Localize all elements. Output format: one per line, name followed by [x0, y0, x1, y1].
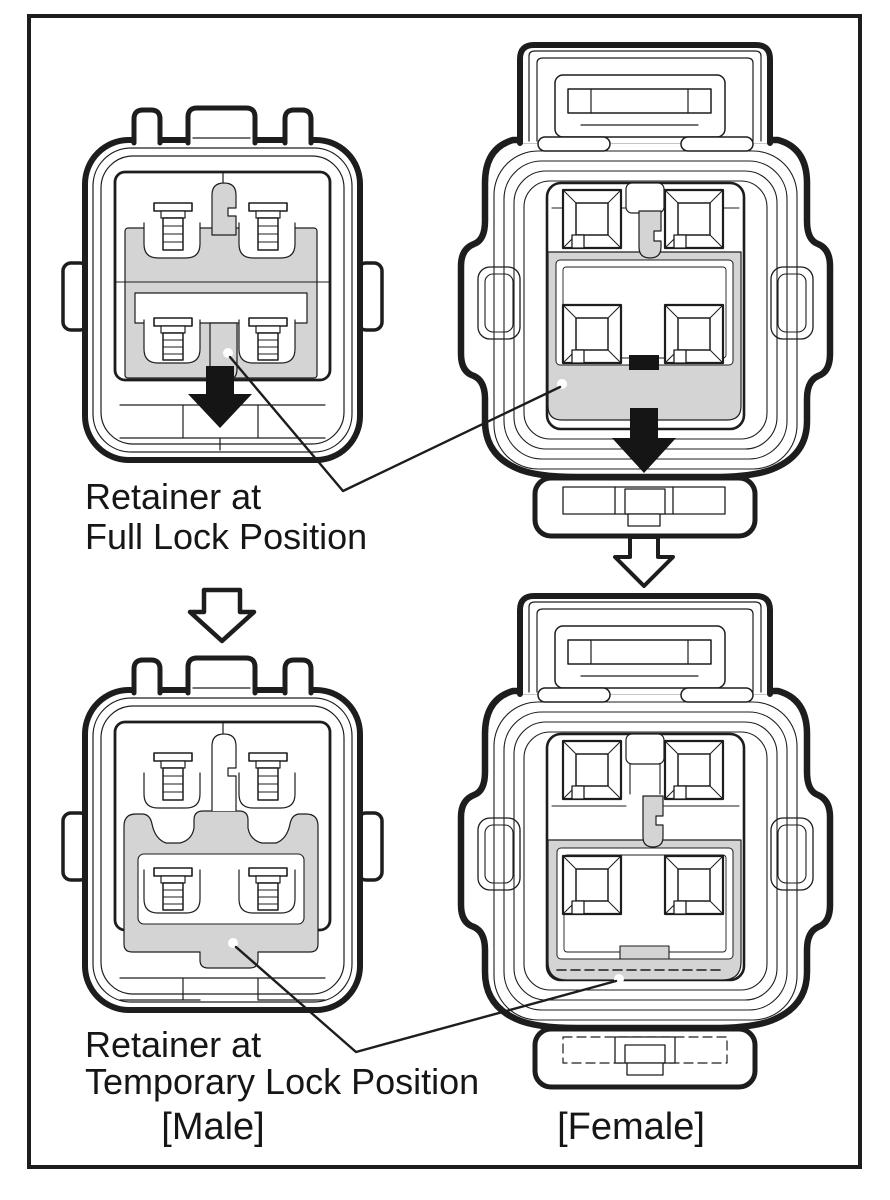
transition-arrow-icon: [190, 590, 254, 641]
terminal: [563, 305, 621, 363]
callout-temporary-lock-line1: Retainer at: [85, 1026, 479, 1063]
female-lock-protrusion: [520, 596, 770, 694]
female-lock-protrusion: [520, 45, 770, 143]
transition-arrow-icon: [615, 537, 673, 586]
male-tab-left: [134, 660, 160, 693]
female-connector-temporary-lock: [461, 596, 830, 1087]
callout-temporary-lock-line2: Temporary Lock Position: [85, 1063, 479, 1100]
male-connector-full-lock: [63, 108, 382, 460]
female-connector-full-lock: [461, 45, 830, 536]
callout-full-lock: Retainer at Full Lock Position: [85, 477, 367, 557]
terminal: [665, 856, 723, 914]
male-caption: [Male]: [161, 1106, 264, 1149]
female-stub: [535, 1029, 755, 1087]
terminal: [665, 190, 723, 248]
terminal: [563, 856, 621, 914]
terminal: [563, 190, 621, 248]
female-caption: [Female]: [557, 1106, 705, 1149]
connector-diagram: [0, 0, 890, 1200]
diagram-page: Retainer at Full Lock Position Retainer …: [0, 0, 890, 1200]
male-connector-temporary-lock: [63, 658, 382, 1010]
male-tab-left: [134, 110, 160, 143]
callout-temporary-lock: Retainer at Temporary Lock Position: [85, 1026, 479, 1100]
callout-full-lock-line1: Retainer at: [85, 477, 367, 517]
terminal: [665, 741, 723, 799]
retainer-black-notch: [629, 355, 659, 370]
callout-full-lock-line2: Full Lock Position: [85, 517, 367, 557]
female-stub: [535, 478, 755, 536]
terminal: [563, 741, 621, 799]
male-tab-right: [285, 110, 311, 143]
male-tab-right: [285, 660, 311, 693]
terminal: [665, 305, 723, 363]
retainer-gray-tab: [620, 946, 669, 959]
retainer-temporary-lock-male: [124, 811, 318, 968]
retainer-full-lock-male: [115, 223, 330, 380]
